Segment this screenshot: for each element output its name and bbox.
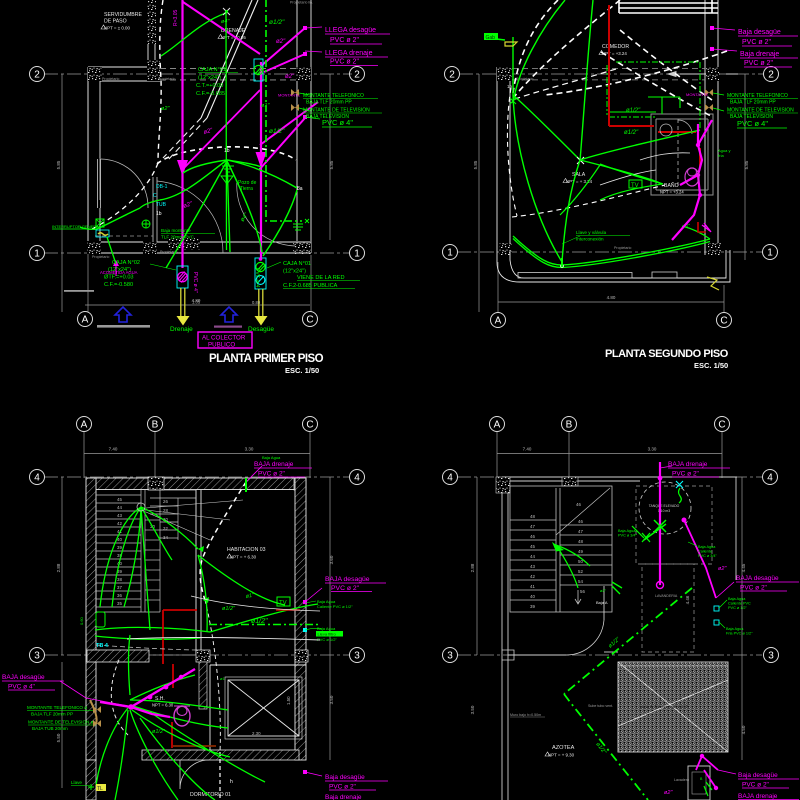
svg-text:Caliente PVC: Caliente PVC xyxy=(728,602,751,606)
svg-text:3.30: 3.30 xyxy=(648,447,657,452)
svg-text:ACOMETIDA AGUA: ACOMETIDA AGUA xyxy=(100,270,138,275)
svg-text:5.50: 5.50 xyxy=(56,733,61,742)
svg-text:ø1/2": ø1/2" xyxy=(626,108,641,114)
svg-text:Baja Agua: Baja Agua xyxy=(698,545,716,549)
svg-text:0.60: 0.60 xyxy=(79,616,84,625)
svg-text:ESC. 1/50: ESC. 1/50 xyxy=(285,366,319,375)
svg-text:4.80: 4.80 xyxy=(607,295,616,300)
svg-text:B: B xyxy=(566,420,573,431)
svg-text:BAJA TUB 20mm: BAJA TUB 20mm xyxy=(32,726,68,731)
svg-text:BAJA drenaje: BAJA drenaje xyxy=(254,461,294,468)
svg-text:5.85: 5.85 xyxy=(329,160,334,169)
svg-text:C.F.2-0.685 PUBLICA: C.F.2-0.685 PUBLICA xyxy=(283,283,338,289)
svg-text:ø1: ø1 xyxy=(220,676,225,681)
svg-text:1: 1 xyxy=(354,249,360,260)
svg-text:43: 43 xyxy=(530,564,535,569)
svg-text:36: 36 xyxy=(117,593,122,598)
svg-text:LLEGA drenaje: LLEGA drenaje xyxy=(325,50,373,57)
svg-text:Caliente: Caliente xyxy=(698,550,712,554)
svg-text:TUB: TUB xyxy=(156,202,167,208)
svg-text:MONTANTE DE TELEVISION ø: MONTANTE DE TELEVISION ø xyxy=(28,720,94,725)
svg-text:3.50: 3.50 xyxy=(470,705,475,714)
svg-text:Lleva filtro: Lleva filtro xyxy=(318,632,337,637)
svg-text:PLANTA SEGUNDO PISO: PLANTA SEGUNDO PISO xyxy=(605,348,729,360)
svg-text:A: A xyxy=(82,315,89,326)
svg-text:A: A xyxy=(494,420,501,431)
svg-text:Baja Agua: Baja Agua xyxy=(618,529,636,533)
svg-text:BAJA TLF 20mm PP: BAJA TLF 20mm PP xyxy=(730,100,776,106)
svg-text:37: 37 xyxy=(117,585,122,590)
svg-text:A: A xyxy=(495,316,502,327)
svg-text:1b: 1b xyxy=(156,211,162,217)
svg-text:SERVIDUMBRE: SERVIDUMBRE xyxy=(104,12,142,18)
svg-text:AL COLECTOR: AL COLECTOR xyxy=(202,335,246,342)
svg-text:AZOTEA: AZOTEA xyxy=(552,745,575,751)
svg-text:Interconexión: Interconexión xyxy=(576,237,604,242)
svg-text:R=3.05: R=3.05 xyxy=(173,10,179,26)
svg-text:Tierra: Tierra xyxy=(240,186,253,192)
svg-text:DB-1: DB-1 xyxy=(156,184,168,190)
svg-text:LAVANDERIA: LAVANDERIA xyxy=(655,594,678,598)
svg-text:3.60: 3.60 xyxy=(329,555,334,564)
svg-text:Gab: Gab xyxy=(486,35,496,41)
svg-text:fría: fría xyxy=(718,153,725,158)
svg-text:NPT = +3.24: NPT = +3.24 xyxy=(660,190,684,195)
svg-text:Fria PVC ø 1/2": Fria PVC ø 1/2" xyxy=(726,632,753,636)
svg-text:48: 48 xyxy=(530,514,535,519)
svg-text:PVC ø 4": PVC ø 4" xyxy=(8,684,36,691)
svg-text:MONTANTE TELEFONICO: MONTANTE TELEFONICO xyxy=(727,93,788,99)
svg-text:44: 44 xyxy=(117,505,122,510)
svg-text:2: 2 xyxy=(449,70,455,81)
svg-text:PVC ø 2": PVC ø 2" xyxy=(329,784,357,791)
svg-text:Drenaje: Drenaje xyxy=(170,326,193,333)
svg-text:C.F.=-0.580: C.F.=-0.580 xyxy=(104,282,133,288)
svg-text:ø1/2": ø1/2" xyxy=(269,128,285,135)
svg-text:ø2": ø2" xyxy=(600,588,607,593)
svg-text:TB 4: TB 4 xyxy=(96,643,109,649)
svg-text:TANQUE ELEVADO: TANQUE ELEVADO xyxy=(649,504,680,508)
svg-text:NPT = +3.24: NPT = +3.24 xyxy=(602,51,627,56)
svg-text:44: 44 xyxy=(530,554,535,559)
svg-text:VIENE DE LA RED: VIENE DE LA RED xyxy=(297,275,345,281)
svg-text:CAJA N°01: CAJA N°01 xyxy=(283,261,311,267)
svg-text:Baja drenaje: Baja drenaje xyxy=(325,794,362,800)
svg-text:ESC. 1/50: ESC. 1/50 xyxy=(694,361,728,370)
svg-text:45: 45 xyxy=(117,497,122,502)
svg-text:A: A xyxy=(81,420,88,431)
svg-text:1.05: 1.05 xyxy=(192,300,201,305)
svg-text:4.50: 4.50 xyxy=(741,725,746,734)
svg-text:PVC ø 2": PVC ø 2" xyxy=(742,782,770,789)
svg-text:PVC ø 2": PVC ø 2" xyxy=(740,585,768,592)
svg-text:5.85: 5.85 xyxy=(473,160,478,169)
svg-text:38: 38 xyxy=(117,577,122,582)
svg-text:Propietario: Propietario xyxy=(92,255,109,259)
svg-text:Muro bajo h=0.50m: Muro bajo h=0.50m xyxy=(510,713,541,717)
svg-text:ØTF.=+0.03: ØTF.=+0.03 xyxy=(104,275,134,281)
svg-text:52: 52 xyxy=(578,569,583,574)
svg-text:C: C xyxy=(306,420,313,431)
svg-text:4: 4 xyxy=(34,473,40,484)
svg-text:48: 48 xyxy=(578,539,583,544)
svg-text:7.40: 7.40 xyxy=(109,447,118,452)
svg-text:43: 43 xyxy=(117,513,122,518)
svg-text:Propietario lin.: Propietario lin. xyxy=(290,1,313,5)
svg-text:PUBLICO: PUBLICO xyxy=(208,342,235,349)
svg-text:Caliente PVC ø 1/2": Caliente PVC ø 1/2" xyxy=(317,604,353,609)
svg-text:5.85: 5.85 xyxy=(56,160,61,169)
svg-text:Lavadero: Lavadero xyxy=(674,778,689,782)
svg-text:COMEDOR: COMEDOR xyxy=(602,44,629,50)
svg-text:26: 26 xyxy=(163,499,168,504)
svg-text:1: 1 xyxy=(34,249,40,260)
svg-text:Baja drenaje: Baja drenaje xyxy=(740,51,779,58)
svg-text:MONTANTE DE TELEVISION: MONTANTE DE TELEVISION xyxy=(727,108,794,114)
svg-text:3: 3 xyxy=(447,651,453,662)
svg-text:ø1/2": ø1/2" xyxy=(222,606,236,612)
svg-text:techo de fibrocemento h=2.40: techo de fibrocemento h=2.40 xyxy=(640,705,688,709)
svg-text:B: B xyxy=(152,420,159,431)
svg-text:39: 39 xyxy=(530,604,535,609)
svg-text:ø2": ø2" xyxy=(285,74,295,80)
svg-text:PVC ø 2": PVC ø 2" xyxy=(672,471,700,478)
svg-text:BAÑO: BAÑO xyxy=(664,182,679,189)
svg-text:BAJA desagüe: BAJA desagüe xyxy=(736,575,779,582)
svg-text:2.30: 2.30 xyxy=(252,731,261,736)
svg-text:1b: 1b xyxy=(224,148,230,154)
svg-text:PVC ø 2": PVC ø 2" xyxy=(330,59,359,66)
svg-text:Llave y válvula: Llave y válvula xyxy=(576,230,607,235)
svg-text:4: 4 xyxy=(767,473,773,484)
svg-text:2.88: 2.88 xyxy=(470,563,475,572)
svg-text:BAJA TLF 20mm PP: BAJA TLF 20mm PP xyxy=(306,100,352,106)
svg-text:BAJA TELEVISION: BAJA TELEVISION xyxy=(306,114,349,120)
svg-text:Baja desagüe: Baja desagüe xyxy=(325,774,365,781)
svg-text:ø2": ø2" xyxy=(161,106,170,112)
svg-text:Baja Agua: Baja Agua xyxy=(262,455,281,460)
svg-text:TV: TV xyxy=(279,601,287,607)
svg-text:NPT = ± 0.00: NPT = ± 0.00 xyxy=(104,26,130,31)
svg-text:TLF 20mm PVC: TLF 20mm PVC xyxy=(161,235,195,240)
svg-text:46: 46 xyxy=(578,519,583,524)
svg-text:2.88: 2.88 xyxy=(56,563,61,572)
svg-text:3.30: 3.30 xyxy=(245,447,254,452)
svg-text:MONTANTE DE TELEVISION: MONTANTE DE TELEVISION xyxy=(303,108,370,114)
svg-text:PVC ø 2": PVC ø 2" xyxy=(331,585,360,592)
svg-text:Baja A: Baja A xyxy=(596,600,608,605)
svg-text:Baja montante: Baja montante xyxy=(161,228,191,233)
svg-text:Baja desagüe: Baja desagüe xyxy=(738,29,781,36)
svg-text:2: 2 xyxy=(354,70,360,81)
svg-text:4: 4 xyxy=(447,473,453,484)
svg-text:(12"x24"): (12"x24") xyxy=(283,269,306,275)
svg-text:LLEGA desagüe: LLEGA desagüe xyxy=(325,27,376,34)
svg-text:PVC ø 2": PVC ø 2" xyxy=(744,60,773,67)
svg-text:Llave: Llave xyxy=(71,780,82,785)
svg-text:Baja desagüe: Baja desagüe xyxy=(738,772,778,779)
svg-text:C: C xyxy=(306,315,313,326)
svg-text:46: 46 xyxy=(576,502,581,507)
svg-text:PVC ø 2": PVC ø 2" xyxy=(330,37,359,44)
svg-text:3: 3 xyxy=(354,651,360,662)
svg-text:ø2": ø2" xyxy=(664,790,673,796)
svg-text:0.80: 0.80 xyxy=(252,300,261,305)
svg-text:SALA: SALA xyxy=(572,172,586,178)
svg-text:7.40: 7.40 xyxy=(523,447,532,452)
svg-text:42: 42 xyxy=(530,574,535,579)
svg-text:ø1/2": ø1/2" xyxy=(152,729,166,735)
svg-text:C: C xyxy=(720,316,727,327)
svg-text:ø1/2": ø1/2" xyxy=(251,618,268,625)
svg-text:Propietario: Propietario xyxy=(102,77,119,81)
svg-text:BAJA desagüe: BAJA desagüe xyxy=(2,674,45,681)
svg-text:C: C xyxy=(718,420,725,431)
svg-text:4: 4 xyxy=(354,473,360,484)
svg-text:4.45: 4.45 xyxy=(741,563,746,572)
svg-text:BAJA desagüe: BAJA desagüe xyxy=(325,576,370,583)
svg-text:PVC ø 2": PVC ø 2" xyxy=(258,471,286,478)
svg-text:(12"x24"): (12"x24") xyxy=(198,75,221,81)
svg-text:PVC ø 3/4": PVC ø 3/4" xyxy=(618,534,638,538)
svg-text:NPT = + 9.30: NPT = + 9.30 xyxy=(548,753,575,758)
svg-text:40: 40 xyxy=(530,594,535,599)
svg-text:MONTANTE TELEFONICO ø: MONTANTE TELEFONICO ø xyxy=(27,705,87,710)
svg-text:PVC-ø-4: PVC-ø-4 xyxy=(254,268,260,288)
svg-text:PVC ø 2": PVC ø 2" xyxy=(742,39,771,46)
svg-text:INTERRUPTOR GENERAL: INTERRUPTOR GENERAL xyxy=(52,224,102,229)
svg-text:35: 35 xyxy=(117,601,122,606)
svg-text:3: 3 xyxy=(768,651,774,662)
svg-text:ø1/2": ø1/2" xyxy=(269,19,285,26)
svg-text:C.T.=+0.00: C.T.=+0.00 xyxy=(196,83,223,89)
svg-text:1b: 1b xyxy=(507,84,513,89)
svg-text:PVC ø 1/2": PVC ø 1/2" xyxy=(317,637,337,642)
svg-text:Baja Agua: Baja Agua xyxy=(726,627,744,631)
svg-text:BAJA TLF 20mm PP: BAJA TLF 20mm PP xyxy=(31,712,73,717)
svg-text:NPT = + 6.30: NPT = + 6.30 xyxy=(230,555,257,560)
svg-text:45: 45 xyxy=(530,544,535,549)
svg-text:56: 56 xyxy=(580,589,585,594)
svg-text:Propietario: Propietario xyxy=(158,77,175,81)
svg-text:2: 2 xyxy=(34,70,40,81)
svg-text:32: 32 xyxy=(163,526,168,531)
svg-text:46: 46 xyxy=(530,534,535,539)
svg-text:PVC ø 4": PVC ø 4" xyxy=(192,272,198,293)
svg-text:ø2": ø2" xyxy=(276,39,286,45)
svg-text:Sube tubo vent.: Sube tubo vent. xyxy=(588,704,613,708)
svg-text:1.50: 1.50 xyxy=(286,696,291,705)
svg-text:CAJA N°01: CAJA N°01 xyxy=(198,67,226,73)
svg-text:TL: TL xyxy=(97,786,103,792)
svg-text:41: 41 xyxy=(530,584,535,589)
svg-text:47: 47 xyxy=(530,524,535,529)
svg-text:47: 47 xyxy=(578,529,583,534)
svg-text:MONTANTE TELEFONICO: MONTANTE TELEFONICO xyxy=(303,93,364,99)
svg-text:MONTANTE: MONTANTE xyxy=(686,92,708,97)
svg-text:C: C xyxy=(153,193,157,199)
svg-text:BAJA drenaje: BAJA drenaje xyxy=(668,461,708,468)
svg-text:4.46: 4.46 xyxy=(685,595,690,604)
svg-text:39: 39 xyxy=(117,545,122,550)
svg-text:1: 1 xyxy=(447,248,453,259)
svg-text:2: 2 xyxy=(768,70,774,81)
svg-text:DE PASO: DE PASO xyxy=(104,19,127,25)
svg-text:ø1/2": ø1/2" xyxy=(624,130,639,136)
svg-text:Baja Agua: Baja Agua xyxy=(728,597,746,601)
svg-text:Propietario: Propietario xyxy=(614,246,631,250)
svg-text:C.F.=-0.685: C.F.=-0.685 xyxy=(196,91,225,97)
svg-text:PLANTA PRIMER PISO: PLANTA PRIMER PISO xyxy=(209,353,324,365)
svg-text:3: 3 xyxy=(34,651,40,662)
svg-text:h: h xyxy=(230,779,233,785)
svg-text:PVC ø 4": PVC ø 4" xyxy=(737,119,768,128)
svg-text:8a: 8a xyxy=(297,186,303,192)
svg-text:HABITACION 03: HABITACION 03 xyxy=(227,547,266,553)
svg-text:49: 49 xyxy=(578,549,583,554)
svg-text:ø2": ø2" xyxy=(718,566,727,572)
svg-text:PVC ø 1/2": PVC ø 1/2" xyxy=(728,606,748,610)
svg-text:5.85: 5.85 xyxy=(744,160,749,169)
svg-text:34: 34 xyxy=(163,535,168,540)
svg-text:54: 54 xyxy=(578,579,583,584)
svg-text:42: 42 xyxy=(117,521,122,526)
svg-text:3.50: 3.50 xyxy=(329,695,334,704)
svg-text:1: 1 xyxy=(767,248,773,259)
svg-text:BAJA drenaje: BAJA drenaje xyxy=(738,793,778,800)
svg-text:PVC ø 3/4": PVC ø 3/4" xyxy=(698,554,718,558)
